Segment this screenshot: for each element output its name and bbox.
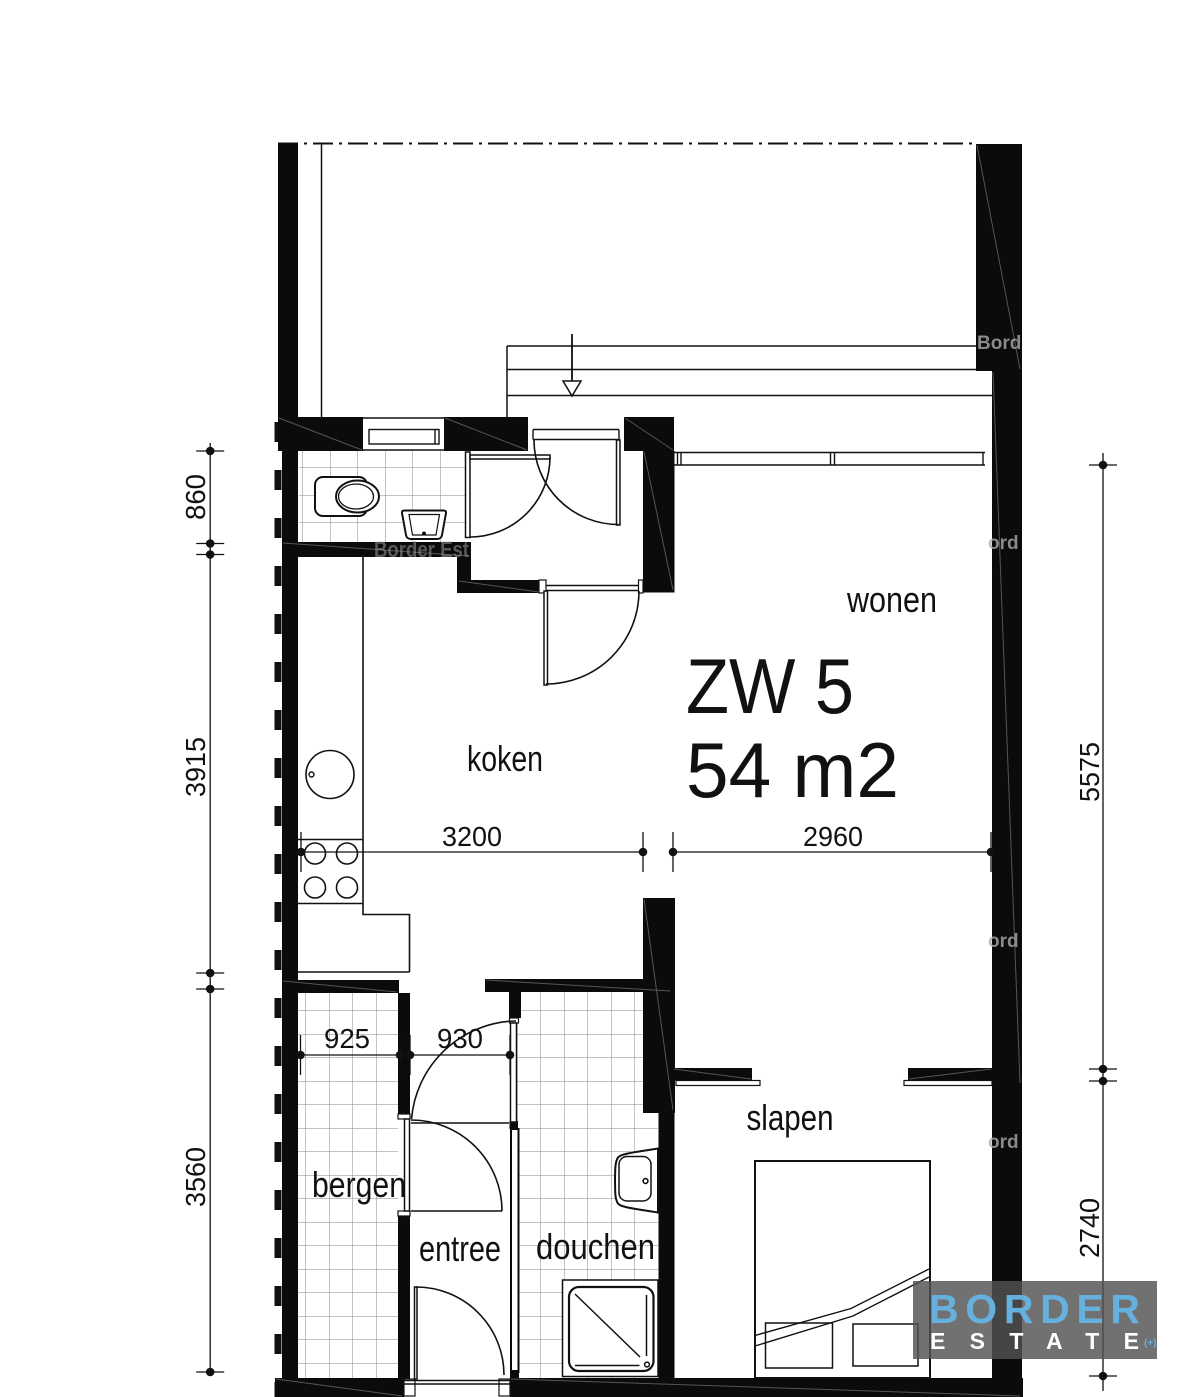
svg-text:930: 930 — [437, 1023, 483, 1054]
svg-text:ZW 5: ZW 5 — [686, 642, 854, 730]
svg-text:koken: koken — [467, 738, 543, 779]
svg-text:Border Est: Border Est — [374, 537, 470, 562]
svg-text:3560: 3560 — [180, 1147, 211, 1207]
svg-text:wonen: wonen — [846, 579, 937, 620]
svg-text:Bord: Bord — [977, 333, 1021, 354]
svg-text:925: 925 — [324, 1023, 370, 1054]
svg-text:(+): (+) — [1144, 1338, 1157, 1349]
svg-text:bergen: bergen — [312, 1164, 406, 1205]
svg-text:860: 860 — [180, 474, 211, 520]
svg-text:ord: ord — [988, 931, 1019, 952]
svg-text:2740: 2740 — [1074, 1198, 1105, 1258]
svg-text:3200: 3200 — [442, 821, 502, 852]
svg-text:5575: 5575 — [1074, 742, 1105, 802]
svg-text:2960: 2960 — [803, 821, 863, 852]
svg-text:slapen: slapen — [747, 1097, 834, 1138]
svg-text:douchen: douchen — [536, 1226, 655, 1267]
svg-text:54 m2: 54 m2 — [686, 726, 899, 814]
svg-text:entree: entree — [419, 1228, 501, 1269]
svg-text:ord: ord — [988, 1132, 1019, 1153]
svg-text:3915: 3915 — [180, 737, 211, 797]
svg-text:ord: ord — [988, 533, 1019, 554]
